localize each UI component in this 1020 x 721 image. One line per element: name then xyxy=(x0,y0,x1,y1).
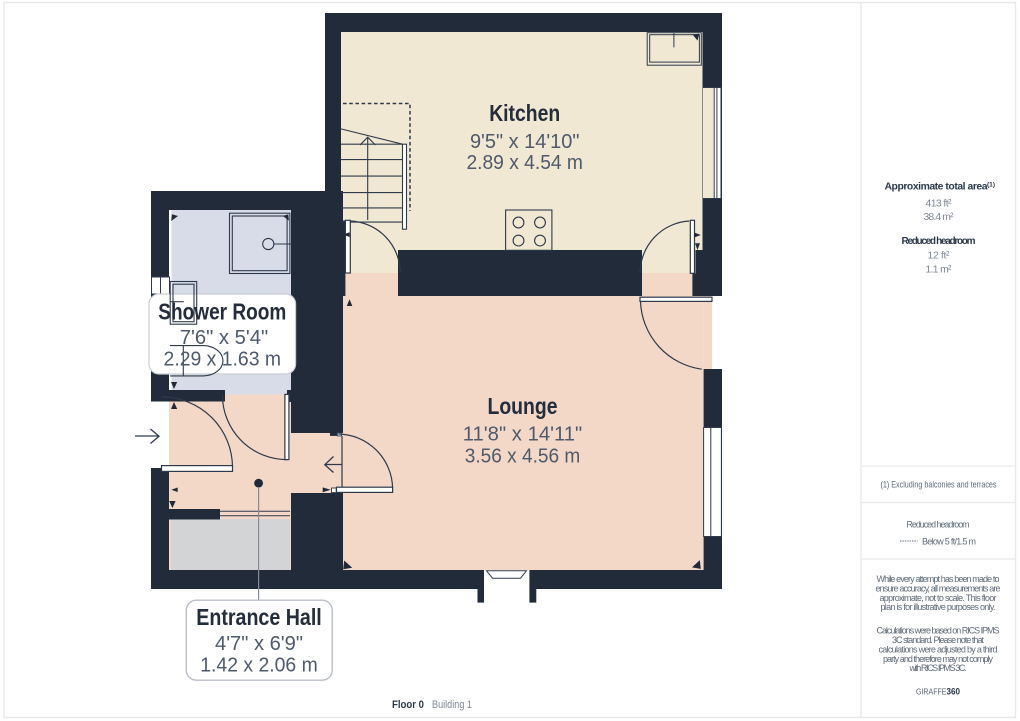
svg-text:3.56 x 4.56 m: 3.56 x 4.56 m xyxy=(465,446,581,468)
svg-text:with RICS IPMS 3C.: with RICS IPMS 3C. xyxy=(909,663,967,673)
svg-text:Kitchen: Kitchen xyxy=(489,100,560,126)
svg-text:Below 5 ft/1.5 m: Below 5 ft/1.5 m xyxy=(922,536,976,546)
svg-text:9'5" x 14'10": 9'5" x 14'10" xyxy=(470,131,580,153)
svg-text:(1) Excluding balconies and te: (1) Excluding balconies and terraces xyxy=(881,480,997,490)
svg-text:1.1 m²: 1.1 m² xyxy=(926,265,953,276)
svg-text:360: 360 xyxy=(947,686,961,696)
svg-text:Shower Room: Shower Room xyxy=(158,299,286,325)
svg-text:(1): (1) xyxy=(987,182,995,189)
svg-text:Reduced headroom: Reduced headroom xyxy=(902,236,976,247)
svg-text:1.42 x 2.06 m: 1.42 x 2.06 m xyxy=(200,654,318,676)
svg-text:Entrance Hall: Entrance Hall xyxy=(196,604,322,630)
svg-text:4'7" x 6'9": 4'7" x 6'9" xyxy=(215,633,303,655)
svg-text:plan is for illustrative purpo: plan is for illustrative purposes only. xyxy=(881,602,996,612)
svg-text:Building 1: Building 1 xyxy=(432,699,472,711)
svg-text:413 ft²: 413 ft² xyxy=(926,199,953,210)
svg-text:Lounge: Lounge xyxy=(488,393,558,419)
svg-text:Floor 0: Floor 0 xyxy=(392,699,424,711)
svg-text:7'6" x 5'4": 7'6" x 5'4" xyxy=(180,327,269,349)
svg-text:2.89 x 4.54 m: 2.89 x 4.54 m xyxy=(466,152,583,174)
svg-text:2.29 x 1.63 m: 2.29 x 1.63 m xyxy=(164,349,282,371)
svg-text:Approximate total area: Approximate total area xyxy=(885,182,988,193)
svg-text:38.4 m²: 38.4 m² xyxy=(924,212,955,223)
svg-text:Reduced headroom: Reduced headroom xyxy=(907,519,970,529)
svg-text:GIRAFFE: GIRAFFE xyxy=(916,686,947,696)
svg-text:11'8" x 14'11": 11'8" x 14'11" xyxy=(463,423,583,445)
svg-text:12 ft²: 12 ft² xyxy=(928,251,951,262)
